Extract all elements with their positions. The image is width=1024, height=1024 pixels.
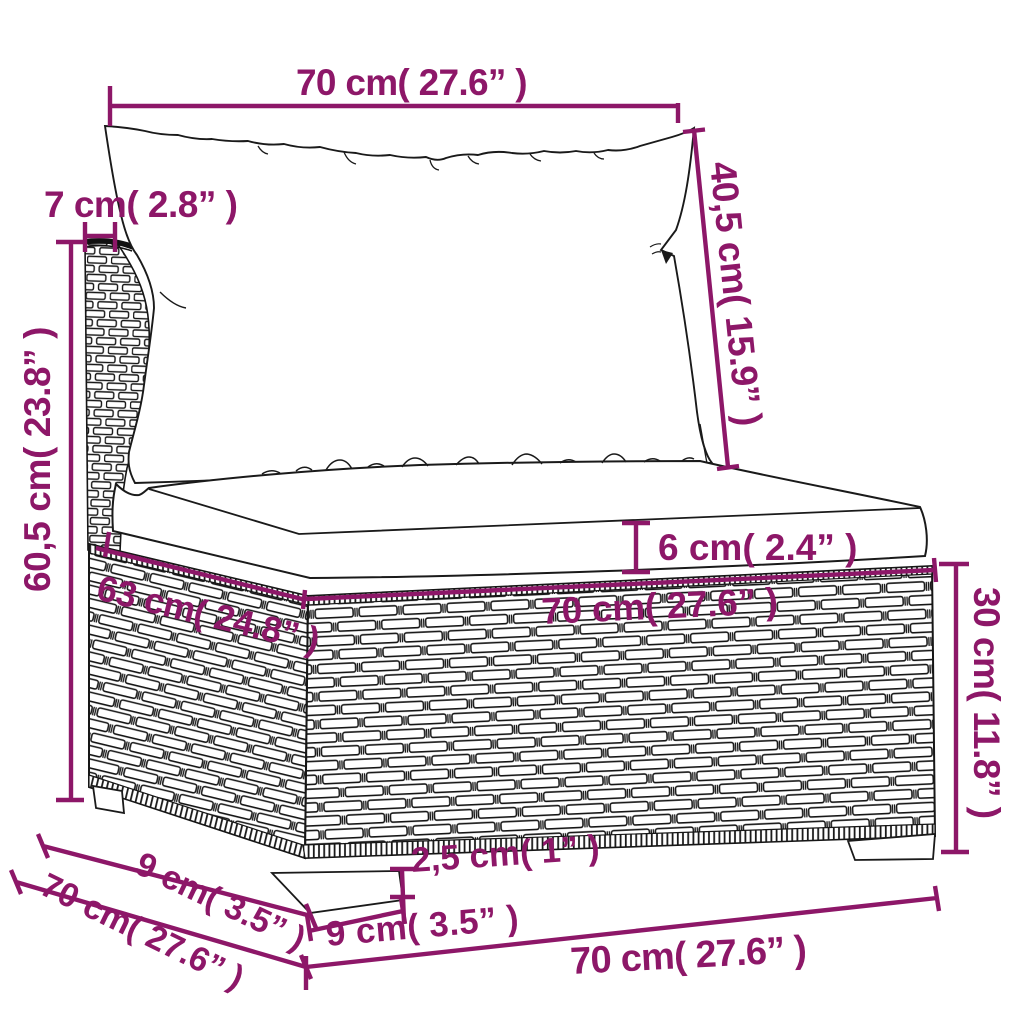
svg-text:30 cm( 11.8” ): 30 cm( 11.8” ) [966, 587, 1007, 819]
svg-text:60,5 cm( 23.8” ): 60,5 cm( 23.8” ) [17, 327, 58, 592]
svg-text:7 cm( 2.8” ): 7 cm( 2.8” ) [44, 184, 237, 225]
svg-text:70 cm( 27.6” ): 70 cm( 27.6” ) [296, 62, 527, 103]
svg-text:6 cm( 2.4” ): 6 cm( 2.4” ) [658, 527, 857, 568]
